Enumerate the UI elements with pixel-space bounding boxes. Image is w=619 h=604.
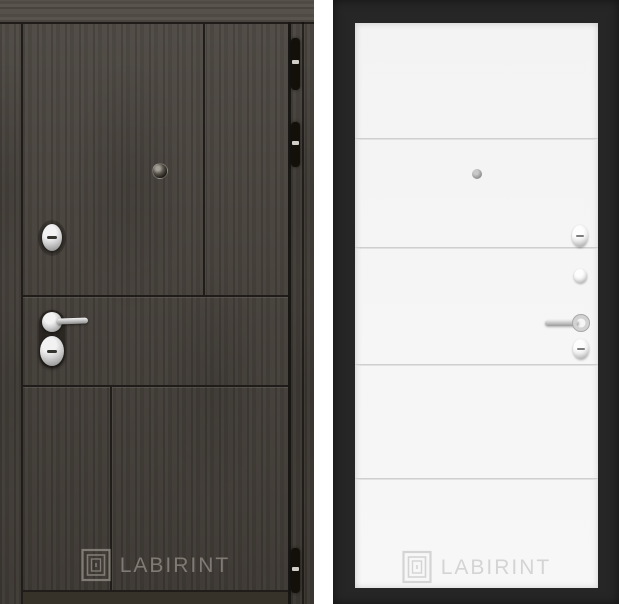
keyhole-escutcheon-icon <box>42 224 62 251</box>
door-frame-top-rail <box>0 0 314 24</box>
night-latch-knob-icon <box>574 269 587 283</box>
turn-knob-icon <box>572 225 588 247</box>
door-interior-white: LABIRINT <box>333 0 619 604</box>
hinge-icon <box>291 122 300 167</box>
door-exterior-dark-wood: LABIRINT <box>0 0 314 604</box>
hinge-pin-band <box>292 141 299 145</box>
panel-groove-horizontal-2 <box>355 247 598 249</box>
handle-rosette <box>572 314 590 332</box>
labirint-logo-icon <box>81 548 111 582</box>
panel-groove-horizontal-3 <box>355 364 598 366</box>
lever-handle-icon <box>57 317 88 324</box>
keyhole-slot <box>47 236 57 239</box>
door-leaf <box>23 24 288 604</box>
knob-slot <box>577 348 585 350</box>
labirint-logo-icon <box>402 550 432 584</box>
panel-groove-horizontal-2 <box>23 385 288 387</box>
peephole-icon <box>152 163 168 179</box>
hinge-pin-band <box>292 60 299 64</box>
knob-slot <box>576 235 584 237</box>
keyhole-escutcheon-icon <box>573 339 589 359</box>
panel-groove-horizontal-4 <box>355 478 598 480</box>
keyhole-slot <box>47 350 57 353</box>
door-product-image: LABIRINT LABIRINT <box>0 0 619 604</box>
brand-watermark-text: LABIRINT <box>441 557 552 578</box>
frame-jamb-line <box>302 22 304 604</box>
hinge-icon <box>291 548 300 593</box>
panel-groove-horizontal-1 <box>23 295 288 297</box>
door-bottom-strip <box>23 592 288 604</box>
hinge-pin-band <box>292 567 299 571</box>
brand-watermark: LABIRINT <box>23 545 288 585</box>
panel-groove-vertical-top <box>203 24 205 297</box>
hinge-icon <box>291 38 300 90</box>
brand-watermark-text: LABIRINT <box>120 555 231 576</box>
brand-watermark: LABIRINT <box>355 547 598 587</box>
peephole-icon <box>472 169 482 179</box>
door-leaf-white-panel: LABIRINT <box>355 23 598 588</box>
panel-groove-horizontal-1 <box>355 138 598 140</box>
cylinder-lock-icon <box>40 336 64 366</box>
door-frame-left-jamb <box>0 24 21 604</box>
